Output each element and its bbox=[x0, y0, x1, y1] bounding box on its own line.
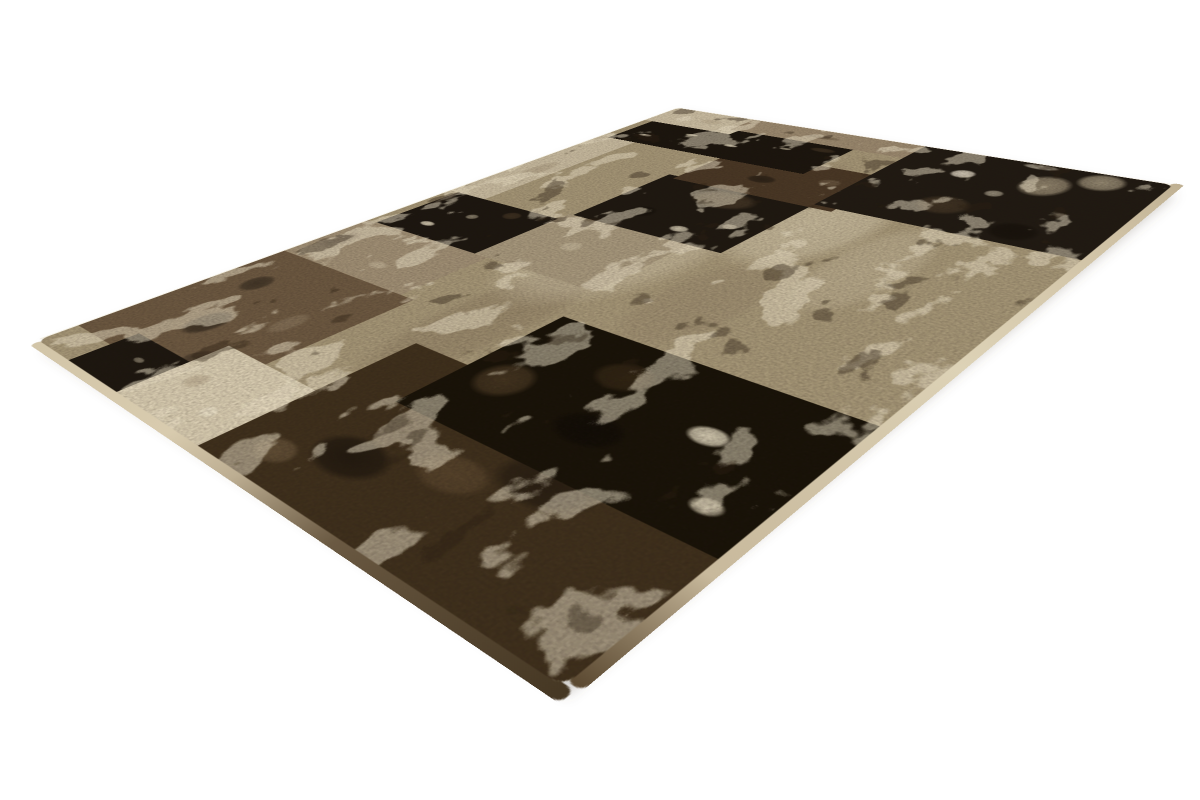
product-photo-scene bbox=[0, 0, 1200, 800]
